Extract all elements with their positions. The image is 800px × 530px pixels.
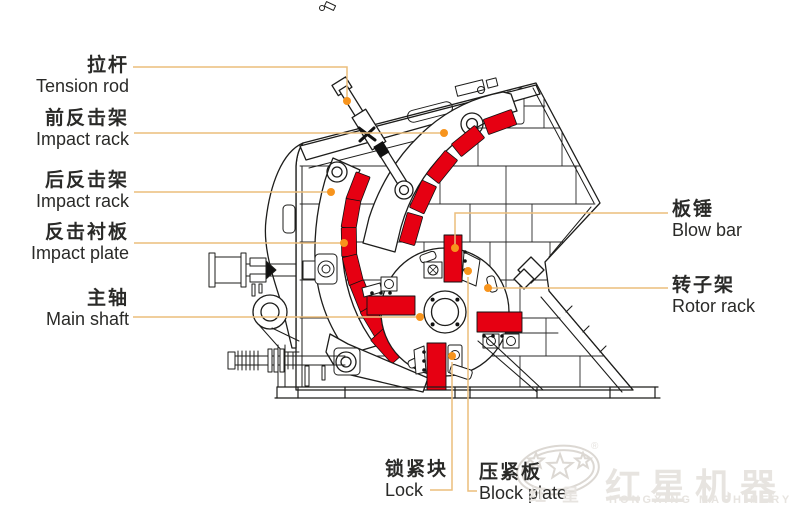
label-en: Impact rack [36,191,129,211]
label-en: Lock [385,480,448,500]
label-rotor-rack: 转子架 Rotor rack [672,275,755,316]
leader-tension-rod [133,67,347,99]
label-zh: 压紧板 [479,462,567,483]
label-zh: 前反击架 [36,108,129,129]
label-en: Blow bar [672,220,742,240]
label-front-impact-rack: 前反击架 Impact rack [36,108,129,149]
label-tension-rod: 拉杆 Tension rod [36,55,129,96]
label-en: Block plate [479,483,567,503]
watermark-logo-en: HONGXING MACHINERY [609,494,792,506]
registered-mark-icon: ® [591,441,598,452]
label-block-plate: 压紧板 Block plate [479,462,567,503]
lid-hinge [455,78,498,96]
label-en: Impact plate [31,243,129,263]
label-en: Impact rack [36,129,129,149]
label-impact-plate: 反击衬板 Impact plate [31,222,129,263]
label-blow-bar: 板锤 Blow bar [672,199,742,240]
machine-drawing [209,2,660,398]
diagram-stage: 拉杆 Tension rod 前反击架 Impact rack 后反击架 Imp… [0,0,800,530]
label-en: Rotor rack [672,296,755,316]
star-icon [575,453,590,468]
watermark-char-hong: 红 [529,481,546,506]
label-en: Main shaft [46,309,129,329]
label-zh: 主轴 [46,288,129,309]
label-zh: 后反击架 [36,170,129,191]
label-zh: 反击衬板 [31,222,129,243]
watermark-char-xing: 星 [562,481,579,506]
rotor-hub [424,291,466,333]
label-rear-impact-rack: 后反击架 Impact rack [36,170,129,211]
label-zh: 拉杆 [36,55,129,76]
label-lock: 锁紧块 Lock [385,459,448,500]
label-zh: 锁紧块 [385,459,448,480]
label-zh: 板锤 [672,199,742,220]
label-en: Tension rod [36,76,129,96]
label-main-shaft: 主轴 Main shaft [46,288,129,329]
label-zh: 转子架 [672,275,755,296]
